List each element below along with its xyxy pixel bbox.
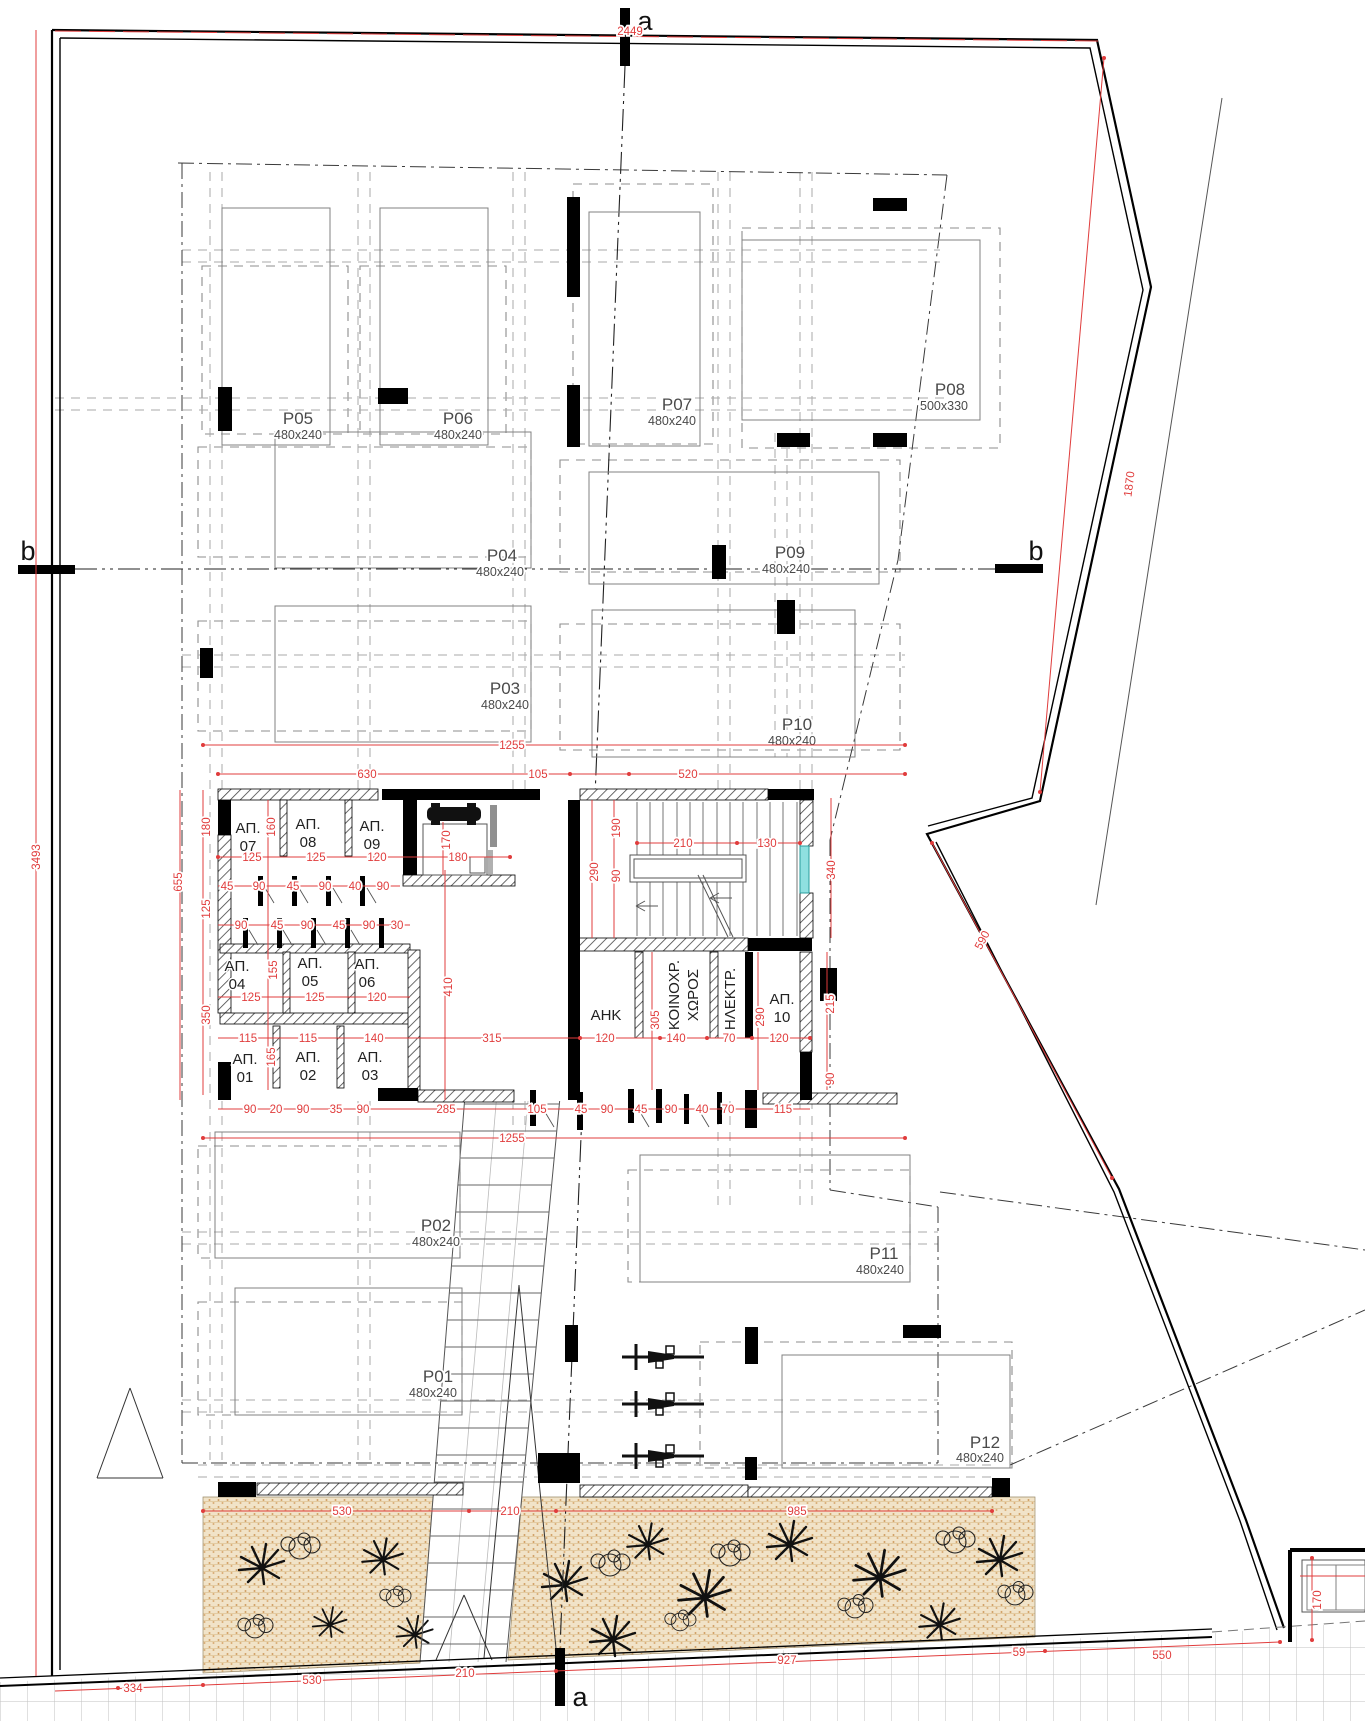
parking-stall-P09 — [589, 472, 879, 584]
dim: 115 — [299, 1033, 317, 1045]
dim: 530 — [302, 1675, 321, 1687]
parking-label: P12 — [970, 1433, 1000, 1452]
parking-stall-P05 — [222, 208, 330, 445]
section-letter-b-right: b — [1028, 536, 1043, 566]
dim: 530 — [332, 1506, 351, 1518]
parking-size: 480x240 — [481, 698, 529, 712]
dim: 125 — [305, 992, 324, 1004]
floor-plan-drawing: P01 480x240 P02 480x240 P03 480x240 P04 … — [0, 0, 1365, 1721]
parking-label: P05 — [283, 409, 313, 428]
dim: 90 — [235, 920, 248, 932]
dim: 70 — [722, 1104, 735, 1116]
storage-number: 06 — [359, 974, 376, 991]
neighbour-boundary-line — [1096, 98, 1222, 905]
dim: 120 — [769, 1033, 788, 1045]
storage-number: 02 — [300, 1067, 317, 1084]
dim: 140 — [364, 1033, 383, 1045]
dim: 125 — [201, 899, 213, 918]
dim: 90 — [377, 881, 390, 893]
dim: 927 — [777, 1655, 796, 1667]
dim: 30 — [391, 920, 404, 932]
room-label-common-1: ΚΟΙΝΟΧΡ. — [666, 960, 683, 1030]
dim: 90 — [601, 1104, 614, 1116]
dim: 90 — [611, 870, 623, 883]
dim: 120 — [595, 1033, 614, 1045]
dim: 120 — [367, 852, 386, 864]
storage-label: ΑΠ. — [232, 1051, 257, 1068]
dim: 210 — [673, 838, 692, 850]
section-letter-b-left: b — [20, 536, 35, 566]
dim: 290 — [589, 862, 601, 881]
dim: 90 — [253, 881, 266, 893]
dim: 90 — [363, 920, 376, 932]
parking-label: P09 — [775, 543, 805, 562]
storage-number: 10 — [774, 1009, 791, 1026]
dim: 1255 — [499, 740, 525, 752]
dim: 180 — [201, 817, 213, 836]
parking-size: 480x240 — [274, 428, 322, 442]
dim: 115 — [774, 1104, 792, 1116]
dim-site-top: 2449 — [617, 26, 643, 38]
section-marker-a-bottom — [555, 1648, 565, 1706]
parking-label: P10 — [782, 715, 812, 734]
storage-label: ΑΠ. — [224, 958, 249, 975]
dim: 155 — [268, 960, 280, 979]
parking-size: 480x240 — [956, 1451, 1004, 1465]
motorcycle-icon — [622, 1344, 704, 1469]
parking-stall-P03 — [275, 606, 531, 742]
parking-label: P03 — [490, 679, 520, 698]
dim: 115 — [239, 1033, 257, 1045]
dim: 40 — [349, 881, 362, 893]
storage-number: 05 — [302, 973, 319, 990]
dim: 130 — [757, 838, 776, 850]
dim: 45 — [635, 1104, 648, 1116]
parking-label: P02 — [421, 1216, 451, 1235]
section-marker-b-left — [18, 565, 75, 574]
storage-number: 03 — [362, 1067, 379, 1084]
dim: 45 — [333, 920, 346, 932]
dim: 160 — [266, 817, 278, 836]
storage-label: ΑΠ. — [354, 956, 379, 973]
parking-label: P08 — [935, 380, 965, 399]
storage-label: ΑΠ. — [235, 820, 260, 837]
dim: 985 — [787, 1506, 806, 1518]
dim: 45 — [575, 1104, 588, 1116]
dim: 210 — [500, 1506, 519, 1518]
dim: 655 — [173, 872, 185, 891]
parking-label: P06 — [443, 409, 473, 428]
dim: 210 — [455, 1668, 474, 1680]
parking-label: P11 — [870, 1244, 899, 1263]
dim: 170 — [1312, 1590, 1324, 1609]
storage-number: 08 — [300, 834, 317, 851]
storage-label: ΑΠ. — [357, 1049, 382, 1066]
parking-size: 480x240 — [434, 428, 482, 442]
parking-size: 480x240 — [768, 734, 816, 748]
dim-site-left: 3493 — [31, 844, 43, 870]
dim: 285 — [436, 1104, 455, 1116]
dim: 90 — [297, 1104, 310, 1116]
storage-number: 04 — [229, 976, 246, 993]
dim: 45 — [287, 881, 300, 893]
dim: 40 — [696, 1104, 709, 1116]
room-label-common-2: ΧΩΡΟΣ — [685, 969, 702, 1021]
dim: 90 — [244, 1104, 257, 1116]
storage-label: ΑΠ. — [297, 955, 322, 972]
dim: 1255 — [499, 1133, 525, 1145]
dim: 45 — [271, 920, 284, 932]
room-label-electrical: ΗΛΕΚΤΡ. — [722, 968, 739, 1030]
storage-number: 09 — [364, 836, 381, 853]
storage-label: ΑΠ. — [769, 991, 794, 1008]
room-label-ahk: ΑΗΚ — [591, 1007, 622, 1024]
parking-size: 480x240 — [762, 562, 810, 576]
dim: 140 — [666, 1033, 685, 1045]
parking-size: 480x240 — [412, 1235, 460, 1249]
parking-size: 480x240 — [476, 565, 524, 579]
dim: 20 — [270, 1104, 283, 1116]
dim: 90 — [319, 881, 332, 893]
dim: 45 — [221, 881, 234, 893]
parking-label: P07 — [662, 395, 692, 414]
dim: 105 — [527, 1104, 546, 1116]
dim: 105 — [528, 769, 547, 781]
parking-size: 480x240 — [648, 414, 696, 428]
parking-size: 480x240 — [856, 1263, 904, 1277]
dim: 170 — [441, 830, 453, 849]
dim: 90 — [825, 1073, 837, 1086]
dim: 35 — [330, 1104, 343, 1116]
dim: 125 — [241, 992, 260, 1004]
dim: 305 — [650, 1010, 662, 1029]
dim: 215 — [825, 994, 837, 1013]
parking-label: P04 — [487, 546, 517, 565]
dim: 70 — [723, 1033, 736, 1045]
dim: 290 — [755, 1007, 767, 1026]
dim: 90 — [301, 920, 314, 932]
dim: 125 — [306, 852, 325, 864]
parking-label: P01 — [423, 1367, 453, 1386]
dim: 550 — [1152, 1650, 1171, 1662]
dim: 340 — [826, 860, 838, 879]
dim: 334 — [123, 1683, 143, 1695]
stair-window — [800, 846, 809, 893]
storage-label: ΑΠ. — [295, 1049, 320, 1066]
dim: 315 — [482, 1033, 501, 1045]
storage-label: ΑΠ. — [295, 816, 320, 833]
parking-size: 500x330 — [920, 399, 968, 413]
dim: 520 — [678, 769, 697, 781]
storage-number: 01 — [237, 1069, 254, 1086]
dim: 165 — [266, 1047, 278, 1066]
section-letter-a-bottom: a — [572, 1682, 588, 1712]
dim: 410 — [443, 977, 455, 996]
dim: 630 — [357, 769, 376, 781]
elevator-door — [490, 805, 497, 847]
dim: 90 — [665, 1104, 678, 1116]
dim: 180 — [448, 852, 467, 864]
dim: 90 — [357, 1104, 370, 1116]
dim: 190 — [611, 818, 623, 837]
floor-plan-sheet: P01 480x240 P02 480x240 P03 480x240 P04 … — [0, 0, 1365, 1721]
dim-site-right-upper: 1870 — [1122, 471, 1137, 498]
dim: 350 — [201, 1005, 213, 1024]
dim: 120 — [367, 992, 386, 1004]
dim: 59 — [1013, 1647, 1026, 1659]
storage-label: ΑΠ. — [359, 818, 384, 835]
storage-number: 07 — [240, 838, 257, 855]
parking-size: 480x240 — [409, 1386, 457, 1400]
